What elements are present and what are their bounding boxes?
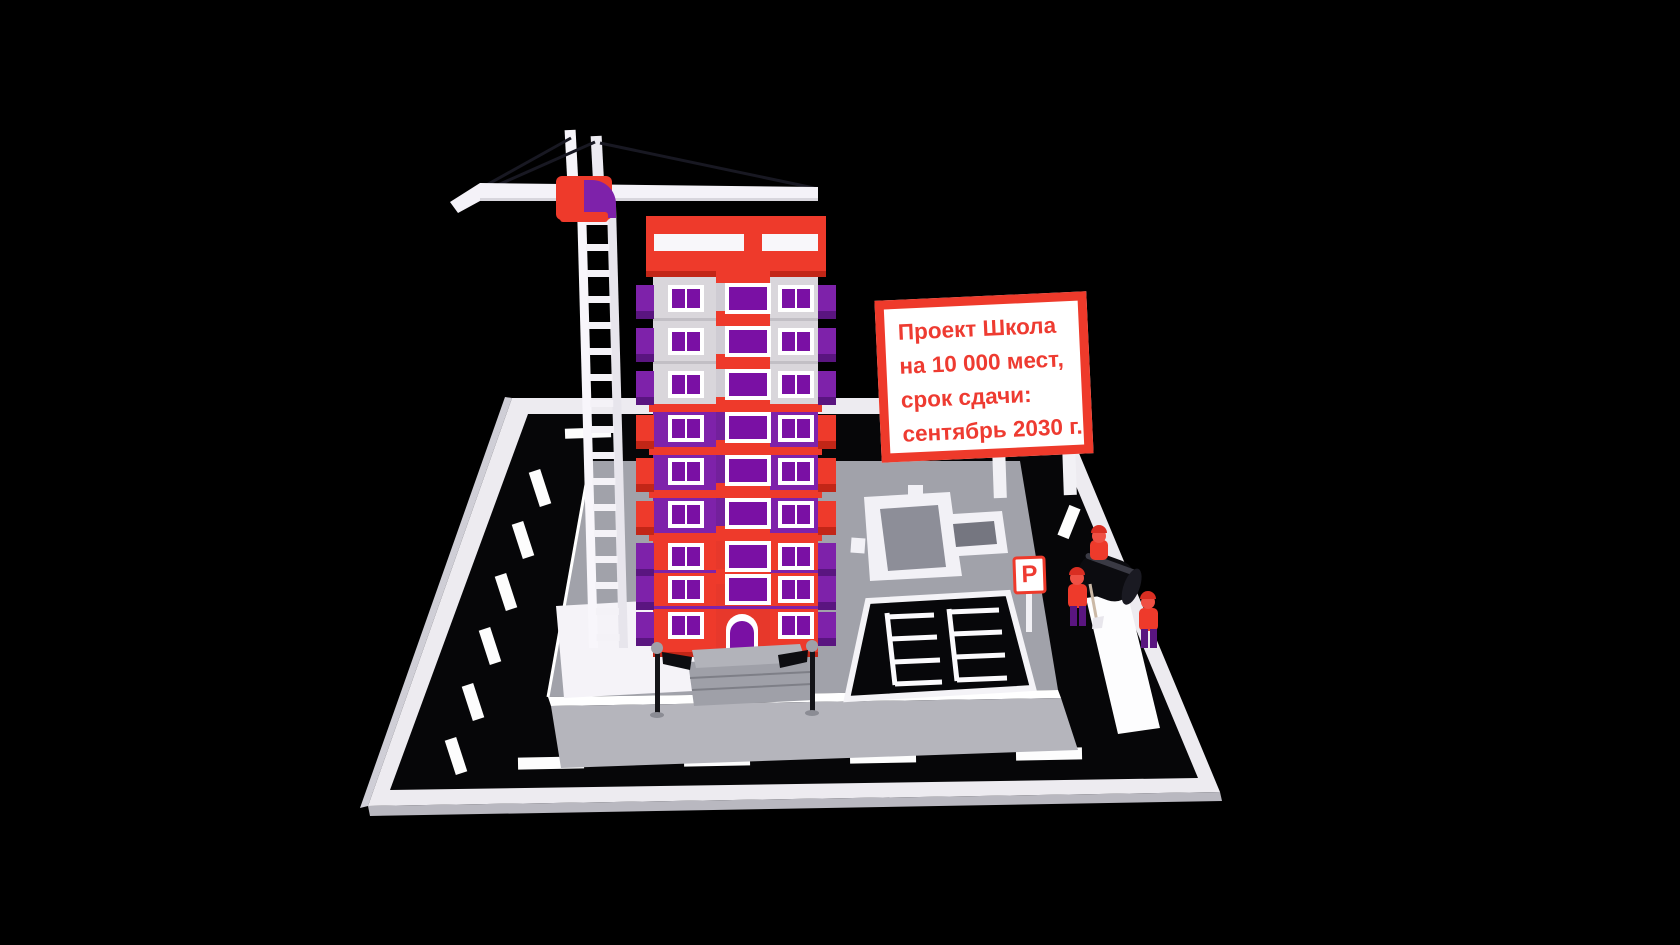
window-pane bbox=[687, 616, 700, 635]
mast-rung bbox=[587, 270, 610, 277]
parking-lot bbox=[847, 593, 1033, 699]
window-pane bbox=[782, 580, 795, 599]
balcony bbox=[636, 415, 654, 441]
window-pane bbox=[797, 419, 810, 438]
balcony bbox=[818, 458, 836, 484]
balcony bbox=[818, 328, 836, 354]
window-pane bbox=[672, 289, 685, 308]
mast-rung bbox=[589, 348, 612, 355]
window-pane bbox=[782, 289, 795, 308]
balcony bbox=[636, 576, 654, 602]
balcony bbox=[636, 285, 654, 311]
balcony bbox=[818, 501, 836, 527]
balcony-shade bbox=[818, 569, 836, 577]
window-pane bbox=[782, 419, 795, 438]
window-pane bbox=[782, 332, 795, 351]
mast-rung bbox=[595, 556, 618, 563]
balcony-shade bbox=[636, 527, 654, 535]
project-billboard: Проект Школа на 10 000 мест, срок сдачи:… bbox=[874, 291, 1093, 462]
window-pane bbox=[797, 375, 810, 394]
balcony-shade bbox=[636, 569, 654, 577]
window-pane bbox=[782, 547, 795, 566]
window-pane bbox=[797, 616, 810, 635]
window-pane bbox=[672, 616, 685, 635]
building-roof bbox=[646, 216, 826, 277]
worker-on-roller bbox=[1090, 525, 1108, 560]
billboard-line: сентябрь 2030 г. bbox=[902, 410, 1082, 452]
balcony-shade bbox=[636, 602, 654, 610]
construction-scene bbox=[0, 0, 1680, 945]
balcony-shade bbox=[818, 354, 836, 362]
bay-window-pane bbox=[729, 330, 767, 353]
mast-rung bbox=[597, 634, 620, 641]
window-pane bbox=[687, 289, 700, 308]
mast-rung bbox=[595, 582, 618, 589]
mast-rung bbox=[590, 400, 613, 407]
bay-window-pane bbox=[729, 459, 767, 482]
window-pane bbox=[797, 462, 810, 481]
bay-window-pane bbox=[729, 578, 767, 601]
balcony-shade bbox=[818, 527, 836, 535]
mast-rung bbox=[587, 296, 610, 303]
parking-sign-letter: P bbox=[1021, 561, 1038, 590]
balcony bbox=[636, 543, 654, 569]
balcony bbox=[818, 543, 836, 569]
balcony bbox=[818, 371, 836, 397]
window-pane bbox=[672, 580, 685, 599]
window-pane bbox=[687, 419, 700, 438]
window-pane bbox=[782, 462, 795, 481]
window-pane bbox=[687, 375, 700, 394]
balcony bbox=[818, 285, 836, 311]
balcony-shade bbox=[818, 638, 836, 646]
balcony-shade bbox=[636, 441, 654, 449]
balcony-shade bbox=[818, 397, 836, 405]
mast-rung bbox=[586, 244, 609, 251]
window-pane bbox=[687, 547, 700, 566]
window-pane bbox=[797, 547, 810, 566]
balcony-shade bbox=[818, 602, 836, 610]
window-pane bbox=[782, 375, 795, 394]
window-pane bbox=[797, 505, 810, 524]
window-pane bbox=[672, 462, 685, 481]
balcony bbox=[636, 612, 654, 638]
mast-rung bbox=[590, 374, 613, 381]
bay-spandrel bbox=[716, 268, 770, 283]
balcony-shade bbox=[636, 484, 654, 492]
parking-sign: P bbox=[1012, 555, 1046, 594]
balcony bbox=[636, 501, 654, 527]
window-pane bbox=[797, 580, 810, 599]
mast-rung bbox=[592, 452, 615, 459]
bay-window-pane bbox=[729, 287, 767, 310]
window-pane bbox=[687, 505, 700, 524]
window-pane bbox=[672, 375, 685, 394]
bay-window-pane bbox=[729, 502, 767, 525]
window-pane bbox=[797, 289, 810, 308]
balcony-shade bbox=[636, 638, 654, 646]
balcony-shade bbox=[818, 311, 836, 319]
balcony bbox=[818, 576, 836, 602]
bay-window-pane bbox=[729, 545, 767, 568]
balcony bbox=[818, 612, 836, 638]
mast-rung bbox=[588, 322, 611, 329]
mast-rung bbox=[591, 426, 614, 433]
building-windows bbox=[668, 283, 814, 639]
mast-rung bbox=[592, 478, 615, 485]
scene-canvas: Проект Школа на 10 000 мест, срок сдачи:… bbox=[0, 0, 1680, 945]
balcony bbox=[636, 371, 654, 397]
mast-rung bbox=[594, 530, 617, 537]
balcony-shade bbox=[818, 441, 836, 449]
balcony bbox=[818, 415, 836, 441]
apartment-building bbox=[646, 216, 826, 706]
crane-jib bbox=[450, 183, 818, 213]
window-pane bbox=[672, 547, 685, 566]
window-pane bbox=[687, 332, 700, 351]
bay-window-pane bbox=[729, 416, 767, 439]
balcony-shade bbox=[818, 484, 836, 492]
window-pane bbox=[782, 505, 795, 524]
window-pane bbox=[672, 332, 685, 351]
window-pane bbox=[672, 419, 685, 438]
bay-window-pane bbox=[729, 373, 767, 396]
balcony bbox=[636, 458, 654, 484]
window-pane bbox=[687, 580, 700, 599]
window-pane bbox=[672, 505, 685, 524]
parking-sign-post bbox=[1026, 592, 1032, 632]
window-pane bbox=[687, 462, 700, 481]
balcony-shade bbox=[636, 397, 654, 405]
window-pane bbox=[782, 616, 795, 635]
balcony bbox=[636, 328, 654, 354]
balcony-shade bbox=[636, 311, 654, 319]
window-pane bbox=[797, 332, 810, 351]
balcony-shade bbox=[636, 354, 654, 362]
mast-rung bbox=[593, 504, 616, 511]
mast-rung bbox=[596, 608, 619, 615]
crane-cab bbox=[556, 176, 616, 222]
